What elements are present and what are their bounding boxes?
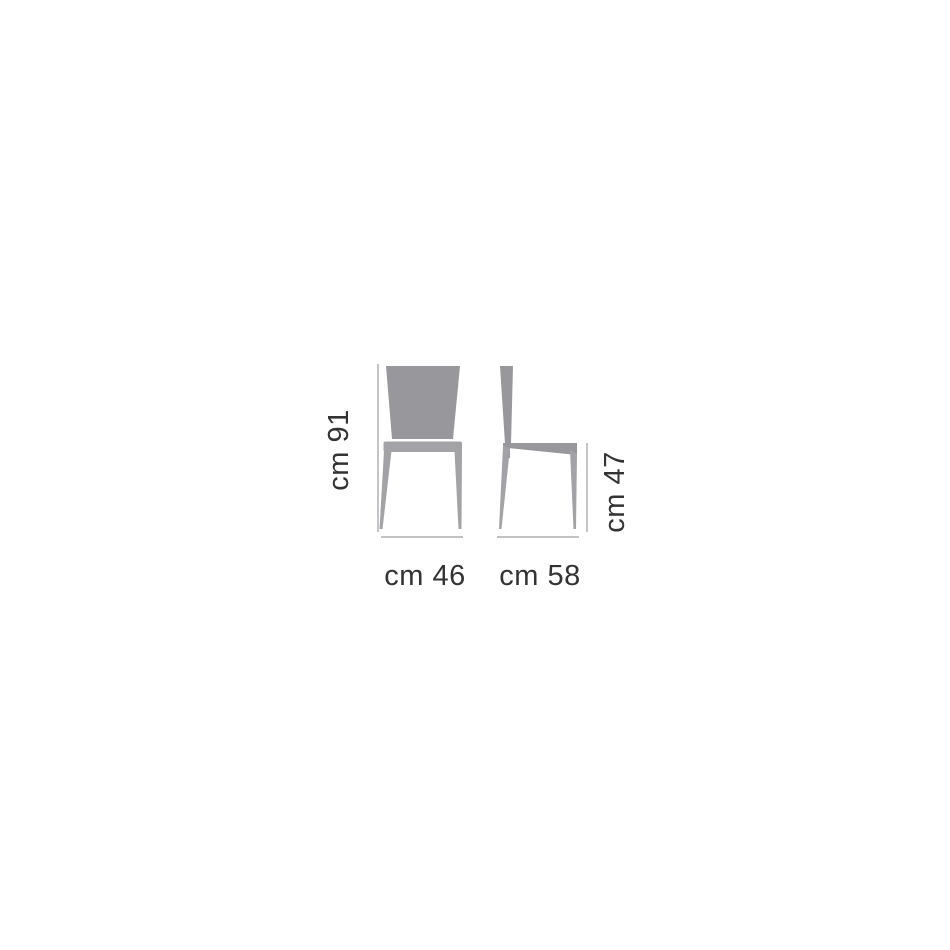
height-dimension-label: cm 91 <box>323 409 355 490</box>
depth-dimension-label: cm 58 <box>499 560 580 592</box>
side-backrest <box>500 366 513 444</box>
page-canvas: cm 91 cm 46 cm 47 cm 58 <box>0 0 950 950</box>
side-seat <box>503 443 577 455</box>
side-view: cm 47 cm 58 <box>497 366 631 592</box>
side-front-leg <box>570 450 577 529</box>
front-right-leg <box>455 451 463 529</box>
front-backrest <box>386 366 460 439</box>
width-dimension-label: cm 46 <box>384 560 465 592</box>
front-left-leg <box>380 451 392 529</box>
dimension-diagram: cm 91 cm 46 cm 47 cm 58 <box>0 0 950 950</box>
seat-height-dimension-label: cm 47 <box>599 451 631 532</box>
front-view: cm 91 cm 46 <box>323 364 466 592</box>
side-back-leg <box>499 446 510 529</box>
front-seat <box>384 442 463 453</box>
